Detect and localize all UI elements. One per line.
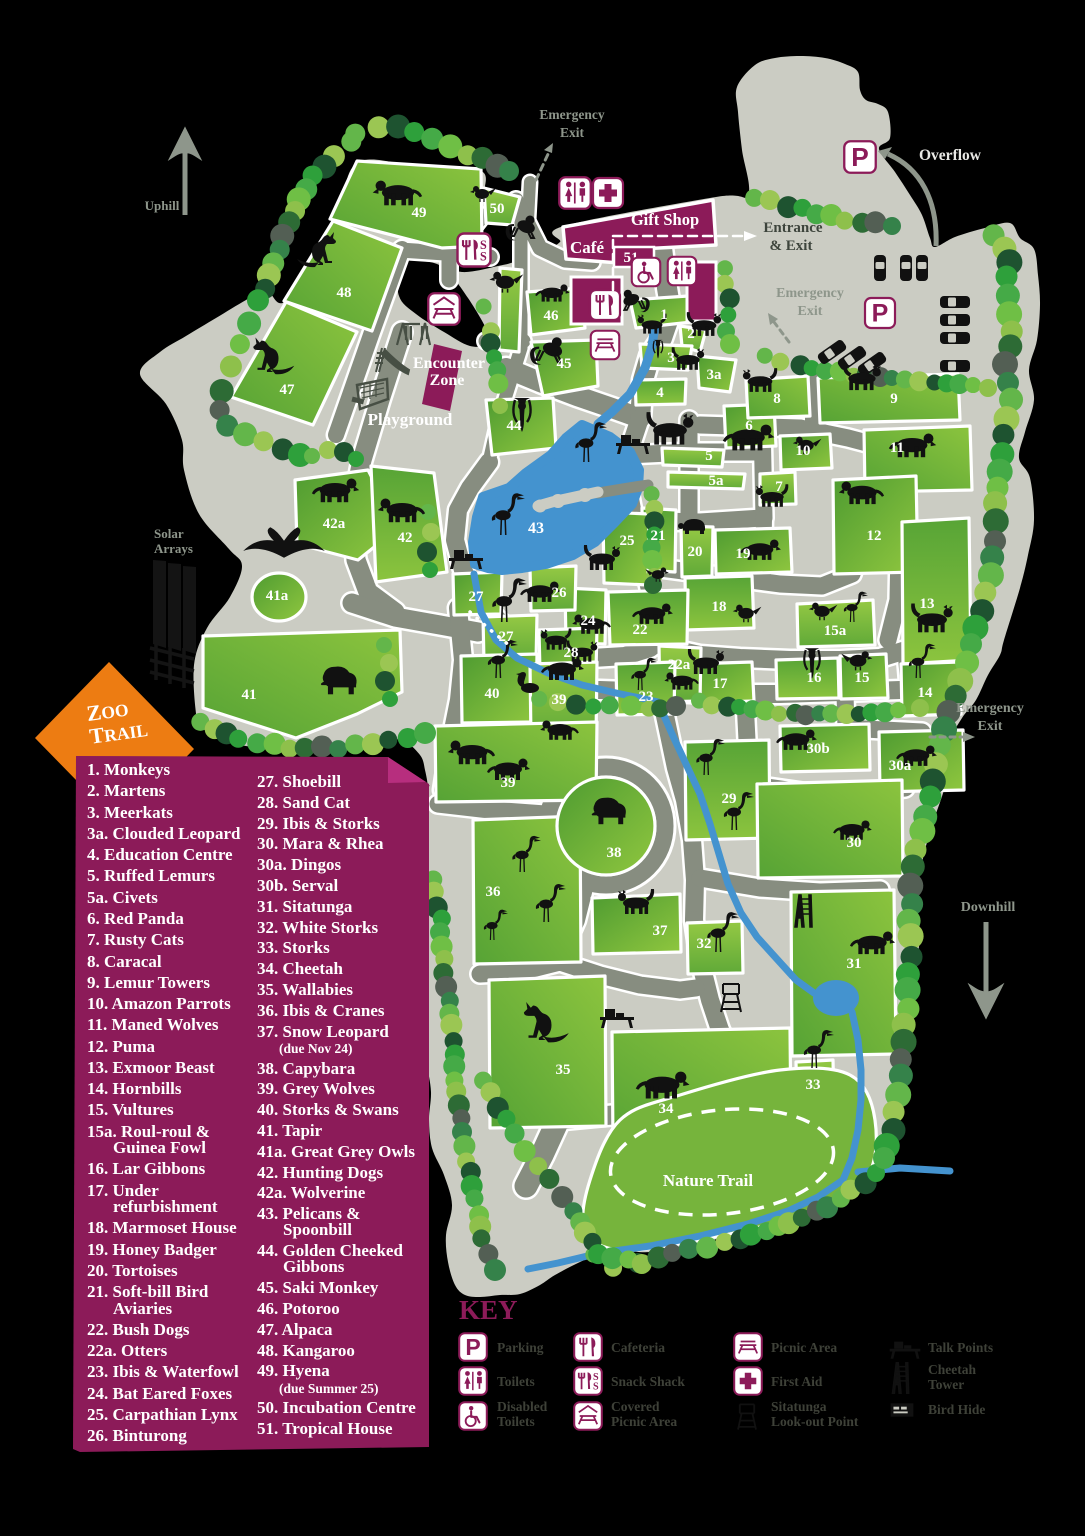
svg-text:Exit: Exit xyxy=(978,719,1003,734)
svg-text:8. Caracal: 8. Caracal xyxy=(87,952,162,971)
svg-text:50. Incubation Centre: 50. Incubation Centre xyxy=(257,1398,416,1417)
svg-text:33: 33 xyxy=(806,1077,821,1093)
svg-text:9: 9 xyxy=(890,391,898,407)
svg-text:32. White Storks: 32. White Storks xyxy=(257,918,378,937)
svg-text:Toilets: Toilets xyxy=(497,1414,535,1429)
svg-text:46. Potoroo: 46. Potoroo xyxy=(257,1299,340,1318)
svg-text:Entrance: Entrance xyxy=(763,220,823,236)
svg-text:Solar: Solar xyxy=(154,526,184,541)
svg-text:Emergency: Emergency xyxy=(956,701,1024,716)
svg-text:27. Shoebill: 27. Shoebill xyxy=(257,772,341,791)
svg-text:39. Grey Wolves: 39. Grey Wolves xyxy=(257,1079,375,1098)
svg-text:49: 49 xyxy=(412,205,427,221)
svg-text:41a. Great Grey Owls: 41a. Great Grey Owls xyxy=(257,1142,415,1161)
svg-text:39: 39 xyxy=(552,692,567,708)
svg-text:3: 3 xyxy=(667,350,675,366)
svg-text:Uphill: Uphill xyxy=(145,198,180,213)
svg-text:34: 34 xyxy=(659,1101,675,1117)
svg-text:Covered: Covered xyxy=(611,1399,660,1414)
svg-text:34. Cheetah: 34. Cheetah xyxy=(257,959,343,978)
svg-text:49. Hyena: 49. Hyena xyxy=(257,1361,330,1380)
svg-text:7. Rusty Cats: 7. Rusty Cats xyxy=(87,930,184,949)
svg-text:19: 19 xyxy=(736,546,751,562)
svg-text:13: 13 xyxy=(920,596,935,612)
svg-text:18. Marmoset House: 18. Marmoset House xyxy=(87,1218,237,1237)
svg-text:15a: 15a xyxy=(824,623,847,639)
svg-text:22a: 22a xyxy=(668,657,691,673)
svg-text:35: 35 xyxy=(556,1062,571,1078)
svg-text:Look-out Point: Look-out Point xyxy=(771,1414,859,1429)
svg-text:30. Mara & Rhea: 30. Mara & Rhea xyxy=(257,834,384,853)
svg-text:32: 32 xyxy=(697,936,712,952)
svg-text:10. Amazon Parrots: 10. Amazon Parrots xyxy=(87,994,231,1013)
svg-text:30: 30 xyxy=(847,835,862,851)
svg-text:3. Meerkats: 3. Meerkats xyxy=(87,803,173,822)
svg-text:3a: 3a xyxy=(707,367,723,383)
svg-text:Guinea Fowl: Guinea Fowl xyxy=(113,1138,206,1157)
svg-text:48: 48 xyxy=(337,285,352,301)
svg-text:Emergency: Emergency xyxy=(776,286,844,301)
svg-text:Tower: Tower xyxy=(928,1377,964,1392)
svg-text:11. Maned Wolves: 11. Maned Wolves xyxy=(87,1015,219,1034)
svg-text:Overflow: Overflow xyxy=(919,147,982,164)
svg-text:47: 47 xyxy=(280,382,296,398)
svg-text:24: 24 xyxy=(581,613,597,629)
svg-text:15: 15 xyxy=(855,670,870,686)
svg-text:39: 39 xyxy=(501,775,516,791)
svg-text:28. Sand Cat: 28. Sand Cat xyxy=(257,793,350,812)
svg-text:18: 18 xyxy=(712,599,727,615)
svg-text:36. Ibis & Cranes: 36. Ibis & Cranes xyxy=(257,1001,385,1020)
svg-text:37: 37 xyxy=(653,923,669,939)
svg-text:Toilets: Toilets xyxy=(497,1374,535,1389)
svg-text:16. Lar Gibbons: 16. Lar Gibbons xyxy=(87,1159,206,1178)
svg-text:25: 25 xyxy=(620,533,635,549)
svg-text:48. Kangaroo: 48. Kangaroo xyxy=(257,1341,355,1360)
svg-text:30b: 30b xyxy=(806,741,829,757)
svg-text:24. Bat Eared Foxes: 24. Bat Eared Foxes xyxy=(87,1384,233,1403)
svg-text:Exit: Exit xyxy=(798,304,823,319)
svg-text:Encounter: Encounter xyxy=(413,355,485,372)
svg-text:5: 5 xyxy=(705,448,713,464)
svg-text:45: 45 xyxy=(557,356,572,372)
svg-text:First Aid: First Aid xyxy=(771,1374,823,1389)
svg-text:Bird Hide: Bird Hide xyxy=(928,1402,985,1417)
svg-text:Spoonbill: Spoonbill xyxy=(283,1220,352,1239)
svg-text:26. Binturong: 26. Binturong xyxy=(87,1426,187,1445)
svg-text:13. Exmoor Beast: 13. Exmoor Beast xyxy=(87,1058,215,1077)
svg-text:43: 43 xyxy=(528,520,544,537)
svg-text:Talk Points: Talk Points xyxy=(928,1340,993,1355)
svg-text:6. Red Panda: 6. Red Panda xyxy=(87,909,184,928)
svg-text:31: 31 xyxy=(847,956,862,972)
svg-text:9. Lemur Towers: 9. Lemur Towers xyxy=(87,973,210,992)
svg-text:50: 50 xyxy=(490,201,505,217)
svg-text:Gibbons: Gibbons xyxy=(283,1257,345,1276)
svg-text:4: 4 xyxy=(656,385,664,401)
svg-text:19. Honey Badger: 19. Honey Badger xyxy=(87,1240,217,1259)
svg-text:2: 2 xyxy=(687,326,695,342)
svg-text:Zone: Zone xyxy=(430,372,465,389)
svg-text:Snack Shack: Snack Shack xyxy=(611,1374,685,1389)
svg-text:Café: Café xyxy=(570,238,604,257)
svg-text:1: 1 xyxy=(660,307,668,323)
svg-text:2. Martens: 2. Martens xyxy=(87,781,166,800)
svg-text:Downhill: Downhill xyxy=(961,900,1016,915)
svg-text:Playground: Playground xyxy=(368,410,453,429)
svg-text:41: 41 xyxy=(242,687,257,703)
svg-text:refurbishment: refurbishment xyxy=(113,1197,218,1216)
svg-text:42: 42 xyxy=(398,530,413,546)
svg-text:Gift Shop: Gift Shop xyxy=(631,210,699,229)
svg-text:Sitatunga: Sitatunga xyxy=(771,1399,827,1414)
svg-text:KEY: KEY xyxy=(459,1295,518,1325)
svg-text:28: 28 xyxy=(564,645,579,661)
svg-text:42. Hunting Dogs: 42. Hunting Dogs xyxy=(257,1163,383,1182)
svg-text:38. Capybara: 38. Capybara xyxy=(257,1059,356,1078)
svg-text:25. Carpathian Lynx: 25. Carpathian Lynx xyxy=(87,1405,238,1424)
svg-text:Parking: Parking xyxy=(497,1340,544,1355)
svg-text:29. Ibis & Storks: 29. Ibis & Storks xyxy=(257,814,380,833)
svg-text:29: 29 xyxy=(722,791,737,807)
svg-text:40: 40 xyxy=(485,686,500,702)
svg-text:Picnic Area: Picnic Area xyxy=(771,1340,837,1355)
svg-text:35. Wallabies: 35. Wallabies xyxy=(257,980,353,999)
svg-text:26: 26 xyxy=(552,585,568,601)
svg-text:47. Alpaca: 47. Alpaca xyxy=(257,1320,333,1339)
svg-text:14. Hornbills: 14. Hornbills xyxy=(87,1079,182,1098)
svg-text:23. Ibis & Waterfowl: 23. Ibis & Waterfowl xyxy=(87,1362,239,1381)
svg-text:12. Puma: 12. Puma xyxy=(87,1037,156,1056)
svg-text:30a: 30a xyxy=(889,758,912,774)
svg-text:22: 22 xyxy=(633,622,648,638)
svg-text:33. Storks: 33. Storks xyxy=(257,938,330,957)
svg-text:45. Saki Monkey: 45. Saki Monkey xyxy=(257,1278,379,1297)
svg-text:41. Tapir: 41. Tapir xyxy=(257,1121,323,1140)
svg-text:22a. Otters: 22a. Otters xyxy=(87,1341,168,1360)
svg-text:Exit: Exit xyxy=(560,125,585,140)
svg-text:40. Storks & Swans: 40. Storks & Swans xyxy=(257,1100,399,1119)
svg-text:Nature Trail: Nature Trail xyxy=(663,1171,753,1190)
svg-text:7: 7 xyxy=(775,479,783,495)
svg-text:51. Tropical House: 51. Tropical House xyxy=(257,1419,393,1438)
svg-text:(due Nov 24): (due Nov 24) xyxy=(279,1041,353,1056)
svg-text:46: 46 xyxy=(544,308,560,324)
svg-text:37. Snow Leopard: 37. Snow Leopard xyxy=(257,1022,389,1041)
svg-text:21: 21 xyxy=(651,528,666,544)
svg-text:& Exit: & Exit xyxy=(770,238,813,254)
svg-text:27: 27 xyxy=(469,589,485,605)
svg-text:Emergency: Emergency xyxy=(539,107,604,122)
svg-text:23: 23 xyxy=(639,689,654,705)
svg-text:Arrays: Arrays xyxy=(154,541,193,556)
svg-text:8: 8 xyxy=(773,391,781,407)
svg-text:Cheetah: Cheetah xyxy=(928,1362,976,1377)
svg-text:42a. Wolverine: 42a. Wolverine xyxy=(257,1183,366,1202)
svg-text:17: 17 xyxy=(713,676,729,692)
svg-text:5a: 5a xyxy=(709,473,725,489)
svg-text:4. Education Centre: 4. Education Centre xyxy=(87,845,233,864)
svg-text:14: 14 xyxy=(918,685,934,701)
svg-text:Disabled: Disabled xyxy=(497,1399,548,1414)
svg-text:(due Summer 25): (due Summer 25) xyxy=(279,1381,379,1396)
svg-text:5. Ruffed Lemurs: 5. Ruffed Lemurs xyxy=(87,866,215,885)
svg-text:20. Tortoises: 20. Tortoises xyxy=(87,1261,178,1280)
svg-text:Cafeteria: Cafeteria xyxy=(611,1340,665,1355)
svg-text:30a. Dingos: 30a. Dingos xyxy=(257,855,341,874)
svg-text:12: 12 xyxy=(867,528,882,544)
svg-text:41a: 41a xyxy=(266,588,289,604)
svg-text:11: 11 xyxy=(890,440,904,456)
svg-text:3a. Clouded Leopard: 3a. Clouded Leopard xyxy=(87,824,241,843)
svg-text:36: 36 xyxy=(486,884,502,900)
svg-text:22. Bush Dogs: 22. Bush Dogs xyxy=(87,1320,190,1339)
svg-text:20: 20 xyxy=(688,544,703,560)
svg-text:6: 6 xyxy=(745,418,753,434)
svg-text:44: 44 xyxy=(507,418,523,434)
svg-text:30b. Serval: 30b. Serval xyxy=(257,876,339,895)
svg-text:31. Sitatunga: 31. Sitatunga xyxy=(257,897,353,916)
svg-text:38: 38 xyxy=(607,845,622,861)
svg-text:16: 16 xyxy=(807,670,823,686)
svg-text:15. Vultures: 15. Vultures xyxy=(87,1100,174,1119)
svg-text:Aviaries: Aviaries xyxy=(113,1299,173,1318)
svg-text:1. Monkeys: 1. Monkeys xyxy=(87,760,171,779)
svg-text:10: 10 xyxy=(796,443,811,459)
svg-text:42a: 42a xyxy=(323,516,346,532)
svg-text:Picnic Area: Picnic Area xyxy=(611,1414,677,1429)
svg-text:5a. Civets: 5a. Civets xyxy=(87,888,158,907)
